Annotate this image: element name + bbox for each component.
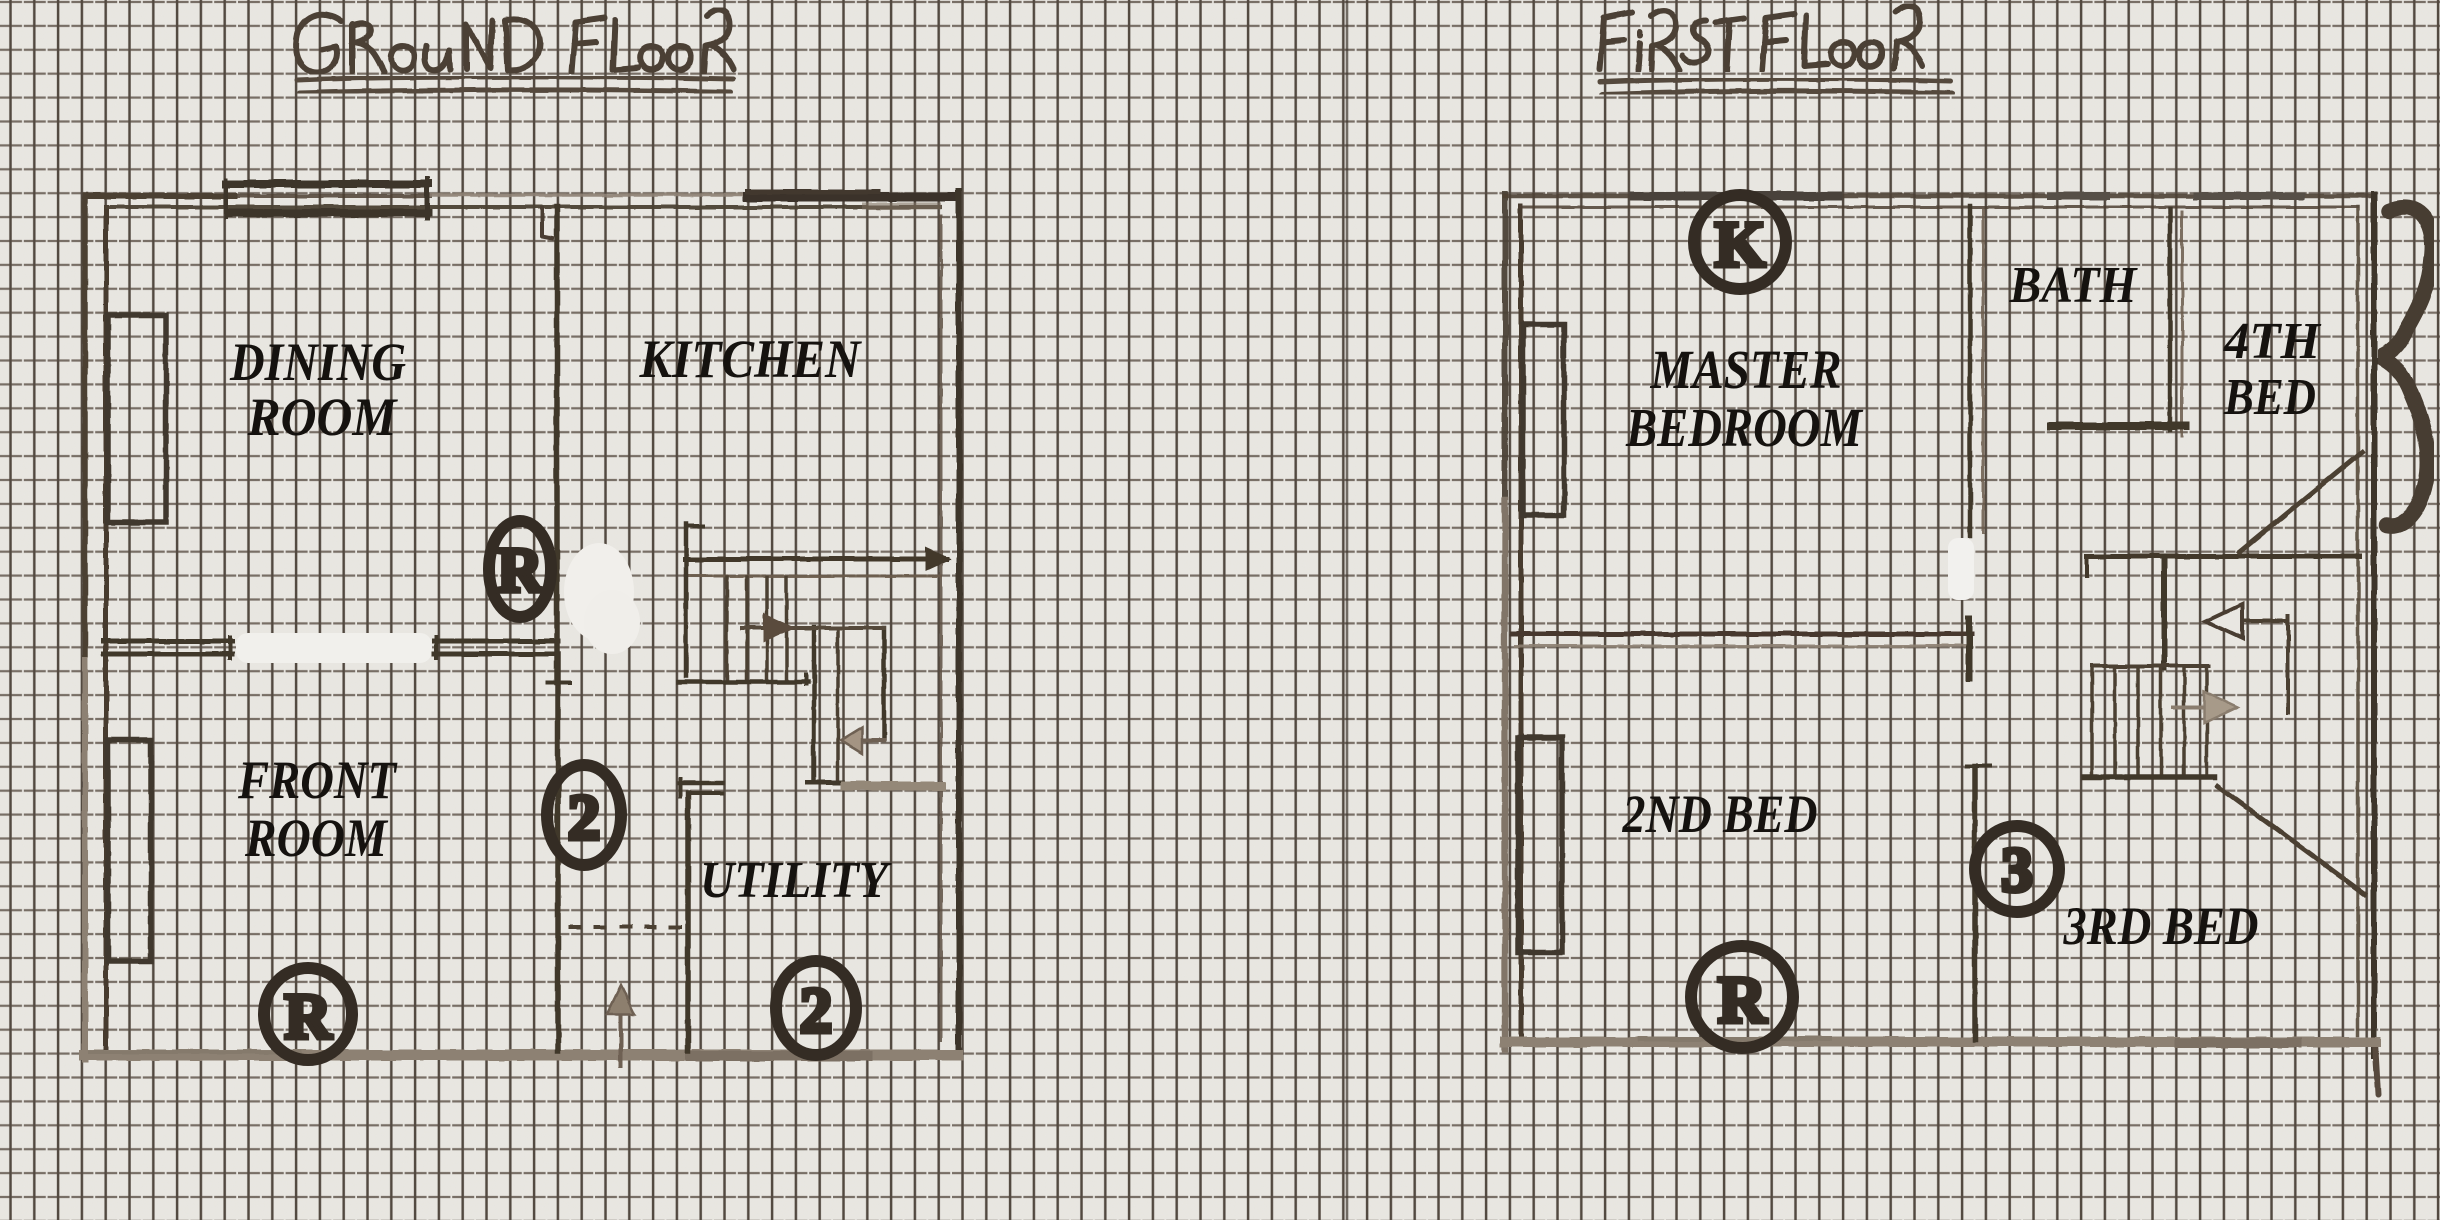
- svg-text:UTILITY: UTILITY: [700, 852, 892, 909]
- svg-text:2ND BED: 2ND BED: [1622, 784, 1818, 844]
- svg-text:K: K: [1715, 209, 1766, 281]
- svg-text:BED: BED: [2223, 369, 2316, 426]
- svg-text:4TH: 4TH: [2223, 313, 2321, 370]
- svg-text:KITCHEN: KITCHEN: [639, 329, 863, 389]
- svg-text:DINING: DINING: [229, 332, 406, 392]
- svg-text:2: 2: [800, 975, 833, 1047]
- svg-text:3: 3: [2001, 835, 2033, 905]
- svg-text:2: 2: [568, 782, 601, 854]
- svg-text:3RD BED: 3RD BED: [2063, 896, 2259, 956]
- svg-text:ROOM: ROOM: [244, 808, 389, 868]
- svg-text:R: R: [497, 535, 544, 605]
- svg-text:ROOM: ROOM: [247, 387, 399, 447]
- svg-text:FRONT: FRONT: [237, 750, 398, 810]
- svg-text:R: R: [1718, 963, 1767, 1037]
- svg-text:BATH: BATH: [2009, 257, 2138, 314]
- svg-text:BEDROOM: BEDROOM: [1625, 397, 1864, 458]
- svg-text:R: R: [285, 981, 333, 1053]
- svg-text:MASTER: MASTER: [1650, 339, 1842, 400]
